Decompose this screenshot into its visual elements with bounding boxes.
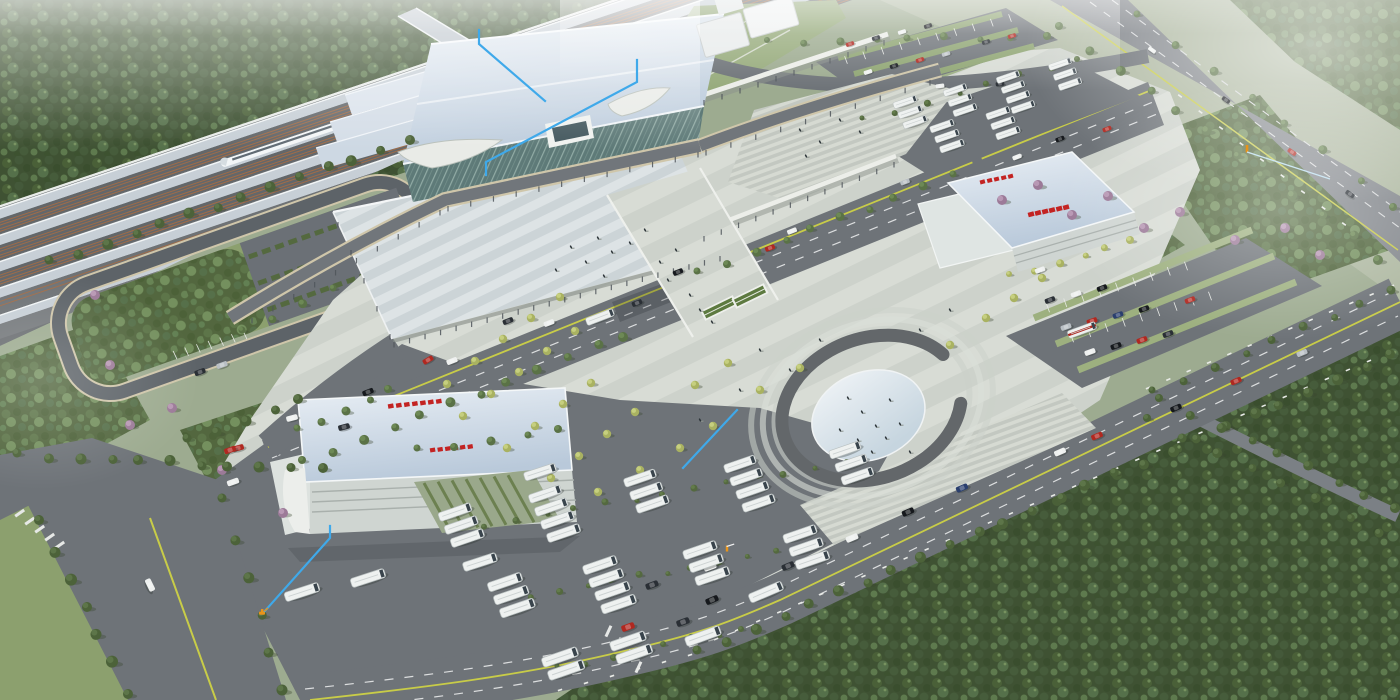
- column: [830, 111, 831, 117]
- column: [757, 82, 758, 88]
- column: [893, 162, 894, 168]
- column: [780, 127, 781, 132]
- column: [376, 306, 377, 312]
- column: [377, 246, 378, 252]
- column: [611, 285, 612, 291]
- column: [675, 157, 676, 163]
- column: [626, 281, 627, 287]
- column: [335, 270, 336, 276]
- column: [538, 186, 539, 192]
- column: [755, 134, 756, 140]
- column: [455, 326, 456, 332]
- column: [337, 222, 338, 228]
- column: [697, 152, 698, 158]
- column: [642, 276, 643, 282]
- column: [704, 260, 705, 266]
- column: [389, 334, 390, 340]
- column: [424, 334, 425, 340]
- column: [876, 169, 877, 175]
- column: [606, 172, 607, 178]
- column: [880, 96, 881, 102]
- scene-svg: [0, 0, 1400, 700]
- column: [772, 209, 773, 215]
- column: [533, 305, 534, 311]
- column: [549, 301, 550, 307]
- column: [755, 216, 756, 222]
- column: [398, 234, 399, 240]
- column: [657, 272, 658, 278]
- column: [730, 142, 731, 148]
- column: [807, 196, 808, 202]
- column: [595, 289, 596, 295]
- column: [721, 229, 722, 235]
- column: [419, 222, 420, 228]
- column: [865, 46, 866, 52]
- column: [293, 294, 294, 300]
- column: [350, 250, 351, 256]
- column: [363, 278, 364, 284]
- column: [739, 88, 740, 94]
- column: [738, 223, 739, 229]
- column: [493, 196, 494, 202]
- column: [470, 201, 471, 207]
- column: [584, 177, 585, 183]
- column: [502, 313, 503, 319]
- column: [272, 306, 273, 312]
- column: [652, 162, 653, 168]
- column: [703, 236, 704, 242]
- column: [580, 293, 581, 299]
- column: [314, 282, 315, 288]
- column: [721, 94, 722, 100]
- column: [859, 175, 860, 181]
- column: [409, 338, 410, 344]
- column: [516, 191, 517, 197]
- column: [929, 80, 930, 86]
- column: [824, 189, 825, 195]
- column: [793, 70, 794, 76]
- column: [356, 258, 357, 264]
- column: [447, 206, 448, 212]
- column: [842, 182, 843, 188]
- column: [847, 52, 848, 58]
- column: [487, 317, 488, 323]
- column: [883, 40, 884, 46]
- aerial-render: [0, 0, 1400, 700]
- column: [439, 210, 440, 216]
- column: [811, 64, 812, 70]
- column: [561, 181, 562, 187]
- column: [855, 103, 856, 109]
- column: [393, 342, 394, 348]
- tree: [1390, 503, 1400, 513]
- column: [471, 322, 472, 328]
- column: [703, 100, 704, 106]
- column: [829, 58, 830, 64]
- column: [719, 256, 720, 262]
- column: [688, 264, 689, 270]
- column: [440, 330, 441, 336]
- column: [775, 76, 776, 82]
- column: [518, 309, 519, 315]
- column: [251, 318, 252, 324]
- column: [629, 167, 630, 173]
- column: [790, 202, 791, 208]
- column: [805, 119, 806, 125]
- column: [705, 150, 706, 156]
- column: [905, 88, 906, 94]
